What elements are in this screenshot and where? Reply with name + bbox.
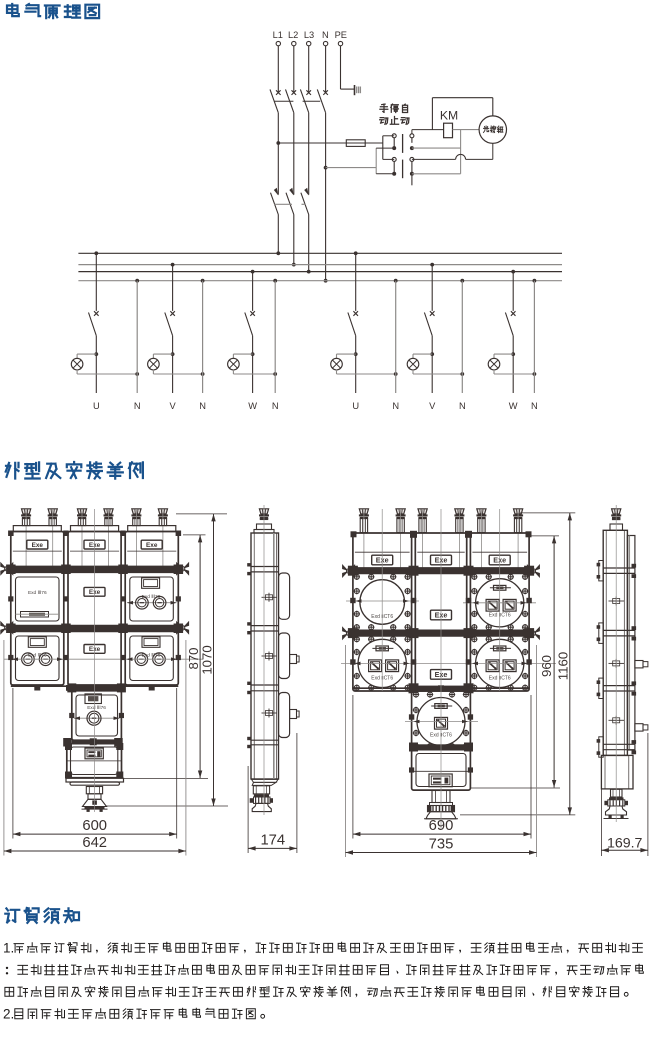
svg-text:1070: 1070 xyxy=(200,645,215,674)
svg-text:KM: KM xyxy=(440,109,458,123)
svg-text:V: V xyxy=(429,401,436,411)
svg-text:2.: 2. xyxy=(3,1007,14,1022)
svg-text:642: 642 xyxy=(82,835,107,851)
svg-text:169.7: 169.7 xyxy=(607,836,643,852)
svg-text:N: N xyxy=(199,401,206,411)
svg-text:N: N xyxy=(459,401,466,411)
svg-text:1160: 1160 xyxy=(556,652,571,680)
svg-text:W: W xyxy=(509,401,518,411)
svg-text:L2: L2 xyxy=(288,30,298,40)
svg-text:735: 735 xyxy=(429,837,454,853)
svg-text:1.: 1. xyxy=(3,941,14,956)
svg-text:Exd ⅡⅠ76: Exd ⅡⅠ76 xyxy=(87,705,106,711)
svg-text:U: U xyxy=(352,401,359,411)
svg-text:W: W xyxy=(248,401,257,411)
svg-text:N: N xyxy=(531,401,538,411)
svg-text:Exe: Exe xyxy=(32,542,44,549)
svg-text:V: V xyxy=(169,401,176,411)
svg-text:Exd ⅡⅠ76: Exd ⅡⅠ76 xyxy=(28,590,47,596)
svg-text:600: 600 xyxy=(82,818,107,834)
svg-text:N: N xyxy=(392,401,399,411)
svg-text:L1: L1 xyxy=(273,30,283,40)
svg-text:N: N xyxy=(134,401,141,411)
svg-text:U: U xyxy=(93,401,100,411)
svg-text:690: 690 xyxy=(429,818,454,834)
svg-text:174: 174 xyxy=(260,833,285,849)
svg-text:N: N xyxy=(272,401,279,411)
svg-text:PE: PE xyxy=(335,30,347,40)
svg-text:Exe: Exe xyxy=(146,542,158,549)
svg-text:L3: L3 xyxy=(304,30,314,40)
svg-text:N: N xyxy=(322,30,329,40)
svg-text:960: 960 xyxy=(539,655,554,677)
